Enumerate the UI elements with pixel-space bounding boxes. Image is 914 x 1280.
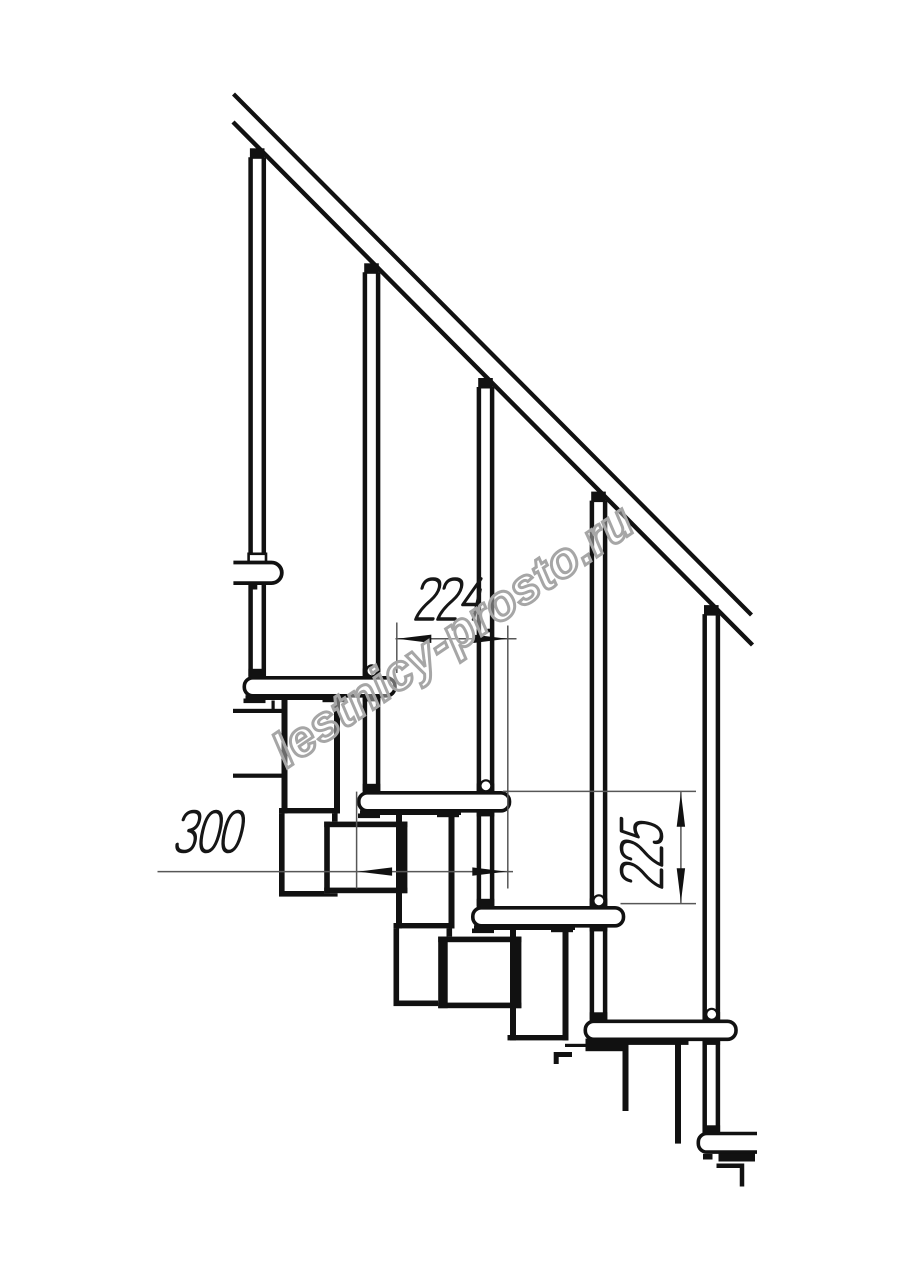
svg-text:lestnicy-prosto.ru: lestnicy-prosto.ru xyxy=(263,494,644,778)
